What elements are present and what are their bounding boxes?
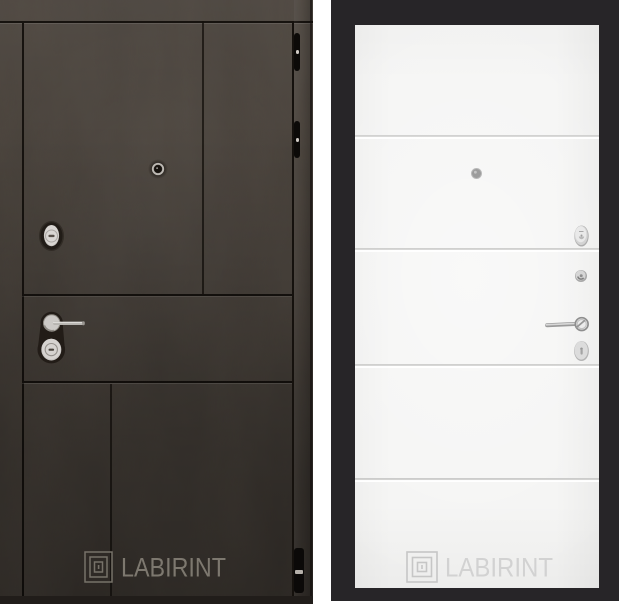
svg-text:LABIRINT: LABIRINT bbox=[121, 553, 226, 583]
svg-text:LABIRINT: LABIRINT bbox=[445, 553, 553, 583]
